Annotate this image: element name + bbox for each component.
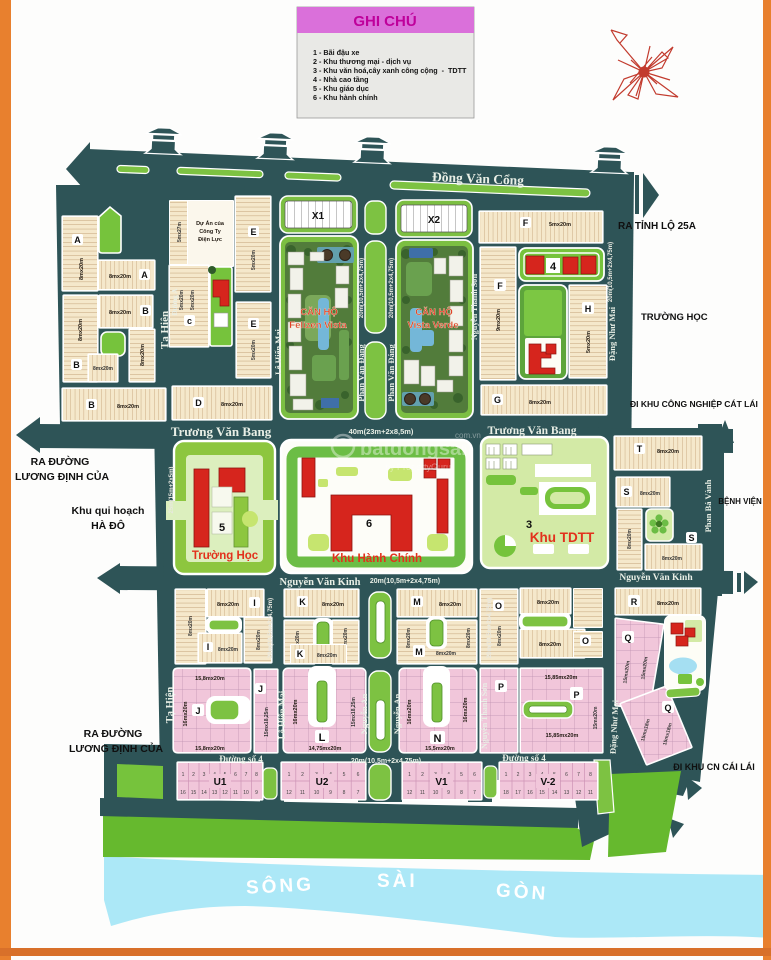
svg-text:batdongsan: batdongsan	[360, 438, 473, 460]
svg-text:20m(10,5m+2x4,75m): 20m(10,5m+2x4,75m)	[359, 258, 365, 318]
svg-text:O: O	[582, 636, 589, 646]
svg-text:by PropertyGuru: by PropertyGuru	[385, 462, 451, 472]
svg-text:5 - Khu giáo dục: 5 - Khu giáo dục	[313, 84, 369, 93]
svg-text:8mx20m: 8mx20m	[657, 601, 679, 607]
svg-text:S: S	[688, 533, 694, 543]
svg-text:G: G	[494, 395, 501, 405]
svg-text:5mx20m: 5mx20m	[251, 339, 257, 360]
svg-text:8mx20m: 8mx20m	[627, 528, 633, 549]
svg-text:6: 6	[473, 772, 476, 778]
svg-text:12: 12	[222, 790, 228, 796]
svg-text:S: S	[623, 487, 629, 497]
svg-text:Phan Văn Đáng: Phan Văn Đáng	[386, 344, 396, 402]
svg-text:CĂN HỘ: CĂN HỘ	[300, 306, 337, 318]
svg-text:Nguyễn Văn Kinh: Nguyễn Văn Kinh	[280, 577, 361, 588]
svg-text:J: J	[195, 706, 200, 716]
svg-text:3 - Khu văn hoá,cây xanh công: 3 - Khu văn hoá,cây xanh công cộng - TDT…	[313, 66, 467, 75]
svg-text:8mx20m: 8mx20m	[256, 629, 262, 650]
svg-text:4 - Nhà cao tầng: 4 - Nhà cao tầng	[313, 75, 369, 84]
svg-text:14: 14	[201, 790, 207, 796]
svg-text:1: 1	[288, 772, 291, 778]
svg-text:Trường Học: Trường Học	[192, 550, 259, 562]
svg-text:13: 13	[212, 790, 218, 796]
svg-text:Đường số 4: Đường số 4	[502, 753, 546, 763]
svg-text:7: 7	[245, 772, 248, 778]
svg-text:14,75mx20m: 14,75mx20m	[309, 746, 342, 752]
svg-text:20m(10,5m+2x4,75m): 20m(10,5m+2x4,75m)	[370, 578, 440, 585]
svg-text:15,85mx20m: 15,85mx20m	[545, 675, 578, 681]
svg-text:20m(10,5m+2x4,75m): 20m(10,5m+2x4,75m)	[608, 242, 614, 302]
svg-text:ĐI KHU CN CÁI LÁI: ĐI KHU CN CÁI LÁI	[673, 762, 755, 772]
svg-text:Lê Hiến Mai: Lê Hiến Mai	[277, 690, 287, 739]
svg-text:16mx20m: 16mx20m	[463, 697, 469, 722]
svg-text:RA TỈNH LỘ 25A: RA TỈNH LỘ 25A	[618, 219, 696, 232]
svg-text:Tạ Hiện: Tạ Hiện	[159, 311, 171, 349]
svg-text:TRƯỜNG HỌC: TRƯỜNG HỌC	[641, 311, 708, 323]
svg-text:1: 1	[408, 772, 411, 778]
svg-text:15mx18,25m: 15mx18,25m	[351, 697, 357, 727]
svg-text:V-2: V-2	[540, 777, 555, 788]
svg-text:HÀ ĐÔ: HÀ ĐÔ	[91, 519, 125, 532]
svg-text:15mx18,25m: 15mx18,25m	[264, 707, 270, 737]
svg-text:6: 6	[357, 772, 360, 778]
svg-text:Nguyễn Văn Kinh: Nguyễn Văn Kinh	[619, 572, 693, 583]
svg-text:O: O	[495, 601, 502, 611]
svg-text:Dự Án của: Dự Án của	[196, 220, 225, 227]
svg-text:8mx20m: 8mx20m	[657, 449, 679, 455]
svg-text:3: 3	[203, 772, 206, 778]
svg-text:J: J	[258, 684, 263, 694]
svg-text:Q: Q	[624, 633, 631, 643]
svg-text:10: 10	[314, 790, 320, 796]
svg-text:Công Ty: Công Ty	[199, 229, 222, 235]
svg-text:10: 10	[433, 790, 439, 796]
svg-text:8mx20m: 8mx20m	[78, 319, 84, 341]
svg-text:8mx20m: 8mx20m	[539, 642, 561, 648]
svg-text:5: 5	[460, 772, 463, 778]
svg-text:LƯƠNG ĐỊNH CỦA: LƯƠNG ĐỊNH CỦA	[69, 742, 163, 755]
svg-text:16: 16	[180, 790, 186, 796]
svg-text:8mx20m: 8mx20m	[79, 258, 85, 280]
svg-text:5mx20m: 5mx20m	[549, 222, 571, 228]
svg-text:8mx20m: 8mx20m	[529, 400, 551, 406]
svg-text:7: 7	[577, 772, 580, 778]
svg-text:8mx20m: 8mx20m	[466, 627, 472, 648]
svg-text:8mx20m: 8mx20m	[109, 310, 131, 316]
svg-text:M: M	[415, 647, 423, 657]
svg-text:13: 13	[564, 790, 570, 796]
svg-text:3: 3	[529, 772, 532, 778]
svg-text:9: 9	[447, 790, 450, 796]
svg-text:Felizen Vista: Felizen Vista	[289, 320, 347, 331]
svg-text:2: 2	[517, 772, 520, 778]
svg-text:5mx20m: 5mx20m	[251, 249, 257, 270]
svg-text:D: D	[195, 398, 202, 408]
svg-text:40m(23m+2x8,5m): 40m(23m+2x8,5m)	[349, 427, 414, 436]
svg-text:20m(10,5m+2x4,75m): 20m(10,5m+2x4,75m)	[389, 258, 395, 318]
svg-text:15: 15	[539, 790, 545, 796]
svg-text:Khu TDTT: Khu TDTT	[530, 530, 595, 545]
svg-text:16mx20m: 16mx20m	[407, 699, 413, 724]
svg-text:2 - Khu thương mại - dịch vụ: 2 - Khu thương mại - dịch vụ	[313, 57, 411, 66]
svg-text:RA ĐƯỜNG: RA ĐƯỜNG	[84, 727, 143, 740]
svg-text:L: L	[319, 732, 326, 744]
svg-text:Nguyễn An: Nguyễn An	[359, 694, 369, 735]
svg-text:Q: Q	[664, 703, 671, 713]
svg-text:X2: X2	[428, 215, 441, 226]
svg-text:15,8mx20m: 15,8mx20m	[195, 746, 225, 752]
svg-text:P: P	[573, 690, 579, 700]
svg-text:9: 9	[329, 790, 332, 796]
svg-text:B: B	[73, 360, 80, 370]
svg-text:Trương Văn Bang: Trương Văn Bang	[488, 425, 577, 437]
svg-text:F: F	[497, 281, 503, 291]
svg-text:F: F	[523, 218, 529, 228]
svg-text:6 - Khu hành chính: 6 - Khu hành chính	[313, 93, 378, 102]
svg-text:4: 4	[550, 261, 557, 273]
svg-text:8mx20m: 8mx20m	[117, 404, 139, 410]
svg-text:8mx20m: 8mx20m	[497, 625, 503, 646]
svg-text:20m(10,5m+2x4,75m): 20m(10,5m+2x4,75m)	[487, 598, 493, 658]
svg-text:Tạ Hiện: Tạ Hiện	[165, 687, 176, 724]
svg-text:9: 9	[255, 790, 258, 796]
svg-text:E: E	[250, 319, 256, 329]
svg-text:U2: U2	[316, 777, 329, 788]
svg-text:2: 2	[192, 772, 195, 778]
svg-text:8mx20m: 8mx20m	[537, 600, 559, 606]
svg-text:8mx20m: 8mx20m	[436, 651, 457, 657]
svg-text:6: 6	[234, 772, 237, 778]
svg-text:8mx20m: 8mx20m	[317, 653, 338, 659]
svg-text:N: N	[434, 733, 442, 745]
svg-text:B: B	[142, 306, 149, 316]
svg-text:10: 10	[243, 790, 249, 796]
svg-text:V1: V1	[435, 777, 448, 788]
svg-text:8: 8	[255, 772, 258, 778]
svg-text:1: 1	[505, 772, 508, 778]
svg-text:Đặng Như Mai: Đặng Như Mai	[607, 306, 617, 361]
svg-text:2: 2	[301, 772, 304, 778]
svg-text:11: 11	[420, 790, 425, 796]
svg-text:RA ĐƯỜNG: RA ĐƯỜNG	[31, 455, 90, 468]
svg-text:2: 2	[421, 772, 424, 778]
svg-text:17: 17	[515, 790, 521, 796]
svg-text:Đường số 4: Đường số 4	[219, 754, 263, 764]
svg-text:8mx20m: 8mx20m	[218, 647, 239, 653]
svg-text:5mx20m: 5mx20m	[586, 331, 592, 353]
svg-text:6: 6	[565, 772, 568, 778]
svg-text:15mx20m: 15mx20m	[593, 706, 599, 729]
svg-text:K: K	[299, 597, 306, 607]
svg-text:E: E	[250, 227, 256, 237]
svg-text:11: 11	[588, 790, 593, 796]
svg-text:8mx20m: 8mx20m	[640, 491, 661, 497]
svg-text:Khu Hành Chính: Khu Hành Chính	[332, 553, 422, 565]
svg-text:CĂN HỘ: CĂN HỘ	[415, 306, 452, 318]
svg-text:Phan Văn Đáng: Phan Văn Đáng	[356, 344, 366, 402]
svg-text:5mx27m: 5mx27m	[177, 221, 183, 242]
svg-text:15: 15	[191, 790, 197, 796]
svg-text:8mx20m: 8mx20m	[188, 615, 194, 636]
svg-text:X1: X1	[312, 211, 325, 222]
svg-text:P: P	[498, 682, 504, 692]
svg-text:I: I	[253, 598, 256, 608]
svg-text:9mx20m: 9mx20m	[496, 309, 502, 331]
svg-text:7: 7	[473, 790, 476, 796]
svg-text:ĐI KHU CÔNG NGHIỆP CÁT LÁI: ĐI KHU CÔNG NGHIỆP CÁT LÁI	[630, 398, 758, 409]
svg-text:Trương Văn Bang: Trương Văn Bang	[171, 424, 272, 439]
svg-text:25m(15m+2x5m): 25m(15m+2x5m)	[169, 467, 175, 514]
svg-text:Lê Hiến Mai: Lê Hiến Mai	[273, 328, 283, 374]
svg-text:8mx20m: 8mx20m	[439, 602, 461, 608]
svg-text:H: H	[585, 304, 592, 314]
svg-text:A: A	[141, 270, 148, 280]
svg-text:12: 12	[286, 790, 292, 796]
svg-text:7: 7	[357, 790, 360, 796]
svg-text:5mx20m: 5mx20m	[179, 289, 185, 310]
svg-text:SÀI: SÀI	[377, 870, 418, 892]
svg-text:A: A	[74, 235, 81, 245]
svg-text:8: 8	[343, 790, 346, 796]
svg-text:5: 5	[343, 772, 346, 778]
svg-text:15,5mx20m: 15,5mx20m	[425, 746, 455, 752]
svg-text:Điện Lực: Điện Lực	[198, 237, 222, 243]
svg-text:8mx20m: 8mx20m	[217, 602, 239, 608]
svg-text:8mx20m: 8mx20m	[406, 627, 412, 648]
svg-text:Nguyễn Thanh Sơn: Nguyễn Thanh Sơn	[470, 273, 479, 340]
svg-text:8: 8	[589, 772, 592, 778]
svg-text:I: I	[207, 642, 210, 652]
svg-text:18: 18	[503, 790, 509, 796]
svg-text:8mx20m: 8mx20m	[93, 366, 114, 372]
svg-text:Đường A: Đường A	[171, 289, 179, 316]
svg-text:T: T	[637, 444, 643, 454]
svg-text:11: 11	[300, 790, 305, 796]
svg-text:Vista Verde: Vista Verde	[407, 320, 458, 331]
svg-text:6: 6	[366, 518, 372, 530]
svg-text:16mx20m: 16mx20m	[183, 701, 189, 726]
svg-text:16mx20m: 16mx20m	[293, 699, 299, 724]
svg-text:12: 12	[576, 790, 582, 796]
svg-text:Khu qui hoạch: Khu qui hoạch	[72, 505, 145, 517]
svg-text:com.vn: com.vn	[455, 431, 481, 440]
svg-text:14: 14	[552, 790, 558, 796]
svg-text:Nguyễn Thanh Sơn: Nguyễn Thanh Sơn	[480, 682, 489, 749]
svg-text:20m(10,5m+2x4,75m): 20m(10,5m+2x4,75m)	[268, 598, 274, 658]
svg-text:BỆNH VIỆN: BỆNH VIỆN	[718, 497, 762, 506]
svg-text:K: K	[297, 649, 304, 659]
svg-text:1: 1	[182, 772, 185, 778]
svg-text:12: 12	[407, 790, 413, 796]
svg-text:GHI CHÚ: GHI CHÚ	[353, 12, 416, 30]
svg-text:5: 5	[219, 522, 225, 534]
svg-text:U1: U1	[214, 777, 227, 788]
svg-text:8mx20m: 8mx20m	[140, 344, 146, 366]
svg-text:SÔNG: SÔNG	[245, 873, 314, 899]
svg-text:8mx20m: 8mx20m	[322, 602, 344, 608]
svg-text:15,85mx20m: 15,85mx20m	[546, 733, 579, 739]
svg-text:M: M	[413, 597, 421, 607]
svg-text:8: 8	[460, 790, 463, 796]
svg-text:8mx20m: 8mx20m	[109, 274, 131, 280]
svg-text:15,8mx20m: 15,8mx20m	[195, 676, 225, 682]
svg-text:20m(10,5m+2x4,75m): 20m(10,5m+2x4,75m)	[351, 758, 421, 765]
svg-text:LƯƠNG ĐỊNH CỦA: LƯƠNG ĐỊNH CỦA	[15, 470, 109, 483]
svg-text:B: B	[88, 400, 95, 410]
svg-text:Phan Bá Vành: Phan Bá Vành	[703, 479, 713, 532]
svg-text:16: 16	[527, 790, 533, 796]
svg-text:8mx20m: 8mx20m	[221, 402, 243, 408]
svg-text:11: 11	[233, 790, 238, 796]
svg-text:c: c	[187, 316, 192, 326]
svg-text:1 - Bãi đậu xe: 1 - Bãi đậu xe	[313, 48, 359, 57]
svg-text:R: R	[631, 597, 638, 607]
svg-text:8mx20m: 8mx20m	[662, 556, 683, 562]
svg-text:GÒN: GÒN	[495, 879, 549, 905]
svg-text:Nguyễn An: Nguyễn An	[392, 694, 402, 735]
svg-text:5mx20m: 5mx20m	[190, 289, 196, 310]
